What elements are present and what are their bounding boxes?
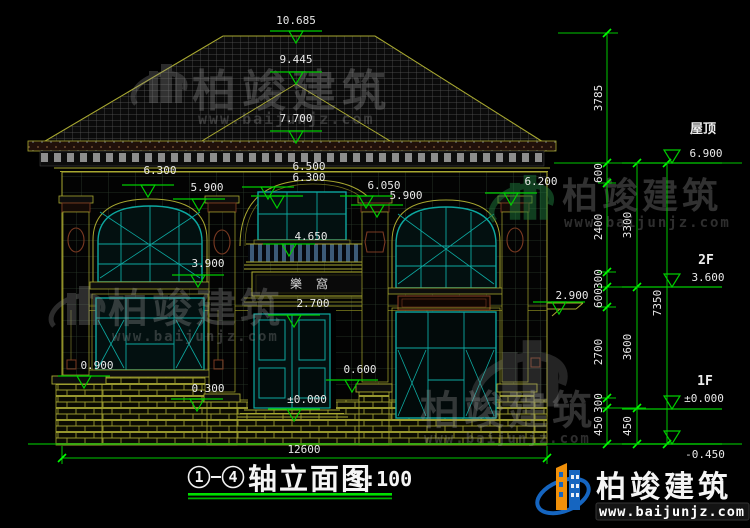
drawing-scale: 1:100	[352, 467, 412, 491]
watermark-brand: 柏竣建筑	[108, 286, 284, 332]
brand-logo-url: www.baijunjz.com	[599, 504, 745, 520]
dim-seg: 2400	[592, 214, 605, 241]
level-ground-value: -0.450	[685, 448, 725, 461]
watermark-brand: 柏竣建筑	[420, 388, 596, 434]
balustrade	[248, 244, 378, 262]
watermark-url: www.baijunjz.com	[424, 431, 591, 447]
elev-porch-wall: 0.300	[191, 382, 224, 395]
elev-center-capital-bottom: 5.900	[389, 189, 422, 202]
level-f1-value: ±0.000	[684, 392, 724, 405]
elev-left-window-sill: 3.900	[191, 257, 224, 270]
elev-left-arch-top: 6.300	[143, 164, 176, 177]
watermark-brand: 柏竣建筑	[562, 176, 722, 217]
dim-seg: 300	[592, 269, 605, 289]
elev-right-pier: 0.600	[343, 363, 376, 376]
elev-sub-ridge: 9.445	[279, 53, 312, 66]
level-roof-value: 6.900	[689, 147, 722, 160]
side-canopy	[547, 303, 583, 316]
level-f2-value: 3.600	[691, 271, 724, 284]
dim-total-width: 12600	[287, 443, 320, 456]
elev-ridge: 10.685	[276, 14, 316, 27]
level-f2-label: 2F	[698, 253, 714, 268]
dim-total-height: 7350	[651, 290, 664, 317]
elev-threshold: ±0.000	[287, 393, 327, 406]
elev-eave-top: 7.700	[279, 112, 312, 125]
elev-right-capital: 6.200	[524, 175, 557, 188]
dim-seg: 600	[592, 288, 605, 308]
brand-logo-name: 柏竣建筑	[596, 470, 732, 505]
dim-seg: 3300	[621, 212, 634, 239]
elev-side-canopy: 2.900	[555, 289, 588, 302]
watermark-url: www.baijunjz.com	[112, 329, 279, 345]
dim-seg: 600	[592, 163, 605, 183]
watermark-url: www.baijunjz.com	[564, 215, 731, 231]
title-underline	[188, 493, 392, 496]
level-roof-label: 屋顶	[690, 122, 716, 137]
cad-elevation-drawing: 柏竣建筑 www.baijunjz.com 柏竣建筑 www.baijunjz.…	[0, 0, 750, 528]
title-underline-2	[188, 498, 392, 500]
dim-seg: 450	[621, 416, 634, 436]
dimension-chains: 3785 600 2400 300 600 2700 300 450 3300 …	[554, 29, 742, 448]
dim-seg: 300	[592, 393, 605, 413]
elev-sign-level: 2.700	[296, 297, 329, 310]
dim-seg: 3600	[621, 334, 634, 361]
signboard-text: 樂窩	[290, 276, 342, 291]
brand-logo-icon	[532, 463, 593, 520]
level-f1-label: 1F	[697, 374, 713, 389]
elev-left-pier: 0.900	[80, 359, 113, 372]
dim-seg: 450	[592, 416, 605, 436]
dim-roof-height: 3785	[592, 85, 605, 112]
axis-start-number: 1	[194, 468, 203, 486]
elev-center-arch-bottom: 6.300	[292, 171, 325, 184]
title-block: 1 4 轴立面图 1:100	[188, 462, 412, 499]
elev-balcony-rail: 4.650	[294, 230, 327, 243]
axis-end-number: 4	[228, 468, 237, 486]
dim-seg: 2700	[592, 339, 605, 366]
brand-logo: 柏竣建筑 www.baijunjz.com	[532, 463, 749, 520]
elev-left-window-head: 5.900	[190, 181, 223, 194]
